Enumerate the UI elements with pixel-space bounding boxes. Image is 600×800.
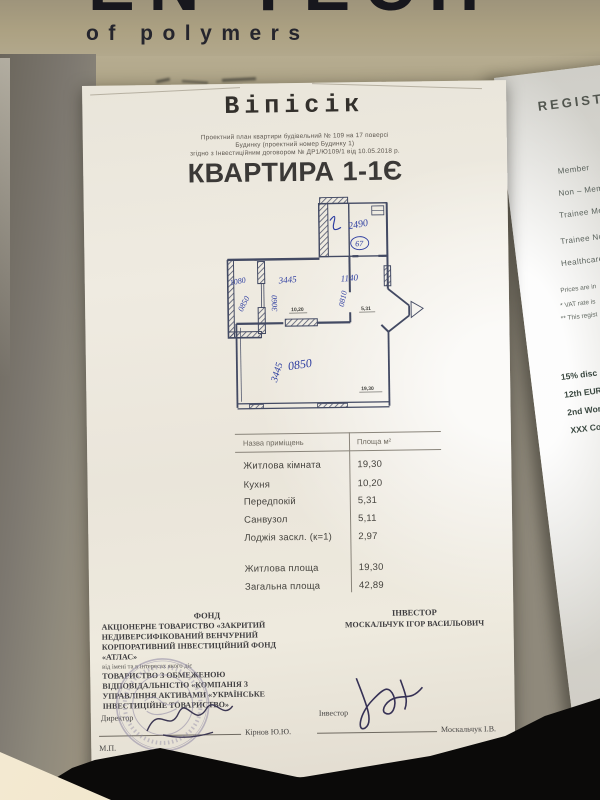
investor-heading: ІНВЕСТОР bbox=[324, 606, 504, 619]
list-item: Healthcare Pro bbox=[561, 252, 600, 268]
list-item: Member bbox=[557, 163, 590, 176]
apartment-plan-document: Віпісік Проектний план квартири будівель… bbox=[82, 80, 516, 780]
fund-line: КОРПОРАТИВНИЙ ІНВЕСТИЦІЙНИЙ ФОНД bbox=[102, 640, 276, 652]
plan-label-kitchen: 10,20 bbox=[291, 307, 304, 313]
table-header: Назва приміщень bbox=[243, 438, 304, 448]
table-row-value: 19,30 bbox=[357, 459, 382, 470]
table-rule bbox=[235, 449, 441, 453]
banner-subtitle: of polymers bbox=[86, 22, 310, 46]
list-item: Trainee Member bbox=[559, 203, 600, 220]
table-row-label: Лоджія заскл. (к=1) bbox=[244, 532, 332, 544]
table-total-value: 42,89 bbox=[359, 580, 384, 591]
developer-logo: Віпісік bbox=[82, 88, 506, 123]
handwritten-dim: 0850 bbox=[236, 295, 251, 313]
plan-label-living: 19,30 bbox=[361, 386, 374, 392]
event-line: 12th EUR bbox=[564, 385, 600, 400]
handwritten-circled-number: 67 bbox=[355, 239, 364, 248]
handwritten-dim: 3445 bbox=[269, 361, 286, 384]
table-row-label: Санвузол bbox=[244, 514, 288, 526]
list-item: Non – Member bbox=[558, 182, 600, 198]
investor-name: МОСКАЛЬЧУК ІГОР ВАСИЛЬОВИЧ bbox=[324, 618, 504, 631]
director-signature-ink bbox=[143, 698, 240, 741]
note-line: * VAT rate is bbox=[560, 298, 596, 309]
plan-label-hall: 5,31 bbox=[361, 306, 371, 312]
table-row-label: Кухня bbox=[244, 479, 271, 490]
table-row-value: 5,11 bbox=[358, 513, 377, 524]
handwritten-dim: 1080 bbox=[229, 276, 246, 288]
table-row-value: 2,97 bbox=[358, 531, 377, 542]
event-line: XXX Co bbox=[570, 422, 600, 436]
note-line: ** This regist bbox=[560, 311, 597, 322]
handwritten-dim: 3060 bbox=[270, 295, 279, 312]
table-rule bbox=[235, 431, 441, 435]
handwritten-scribble bbox=[330, 216, 341, 229]
handwritten-dim: 0850 bbox=[287, 356, 313, 374]
handwritten-dim: 2490 bbox=[347, 218, 369, 233]
table-divider bbox=[349, 432, 352, 592]
table-row-label: Житлова кімната bbox=[243, 460, 321, 472]
handwritten-dim: 0810 bbox=[337, 290, 349, 307]
table-row-label: Передпокій bbox=[244, 496, 296, 508]
folder-edge-highlight bbox=[0, 58, 10, 378]
table-header: Площа м² bbox=[357, 437, 391, 446]
photo-scene: EN TECH of polymers REGISTRA Member Non … bbox=[0, 0, 600, 800]
floor-plan-drawing: 10,20 5,31 19,30 3445 1140 2490 67 1080 … bbox=[222, 193, 433, 426]
note-line: Prices are in bbox=[560, 283, 597, 294]
investor-signature-ink bbox=[334, 669, 431, 734]
table-row-value: 5,31 bbox=[358, 495, 377, 506]
apartment-title: КВАРТИРА 1-1Є bbox=[83, 154, 507, 191]
registration-title: REGISTRA bbox=[537, 88, 600, 114]
handwritten-dim: 1140 bbox=[340, 272, 359, 283]
table-total-value: 19,30 bbox=[359, 562, 384, 573]
event-line: 2nd Wor bbox=[567, 403, 600, 417]
table-total-label: Житлова площа bbox=[245, 563, 319, 575]
folder-cover bbox=[0, 54, 96, 800]
director-name: Кірнов Ю.Ю. bbox=[245, 727, 291, 737]
event-line: 15% disc bbox=[560, 368, 597, 382]
handwritten-dim: 3445 bbox=[277, 274, 297, 286]
wall-banner: EN TECH of polymers bbox=[0, 0, 600, 56]
investor-sign-name: Москальчук І.В. bbox=[441, 724, 496, 734]
list-item: Trainee Non-Me bbox=[560, 229, 600, 246]
fund-heading: ФОНД bbox=[99, 609, 314, 622]
table-total-label: Загальна площа bbox=[245, 581, 320, 593]
table-row-value: 10,20 bbox=[358, 478, 383, 489]
